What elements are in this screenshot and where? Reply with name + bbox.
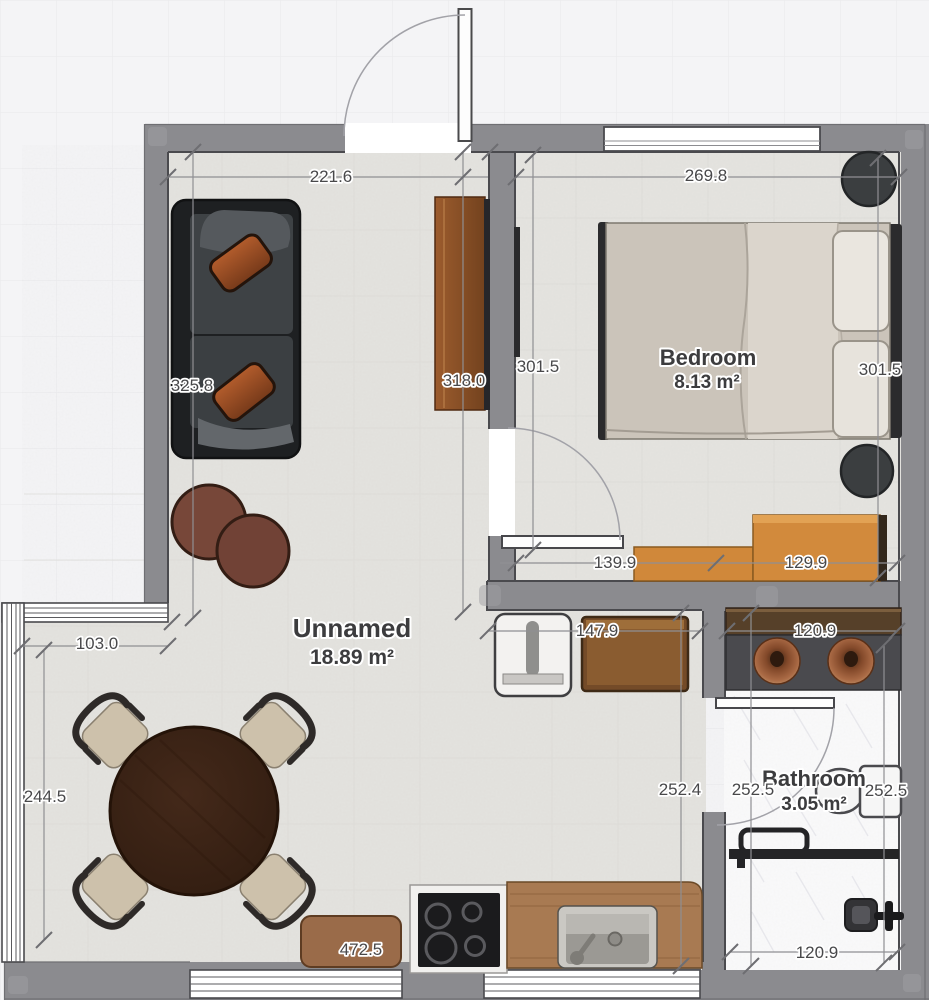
- svg-text:139.9: 139.9: [594, 553, 637, 572]
- svg-text:18.89 m²: 18.89 m²: [310, 646, 394, 669]
- svg-text:472.5: 472.5: [340, 940, 383, 959]
- svg-text:147.9: 147.9: [576, 621, 619, 640]
- svg-text:3.05 m²: 3.05 m²: [781, 794, 846, 815]
- svg-text:252.5: 252.5: [865, 781, 908, 800]
- svg-text:252.4: 252.4: [659, 780, 702, 799]
- svg-text:129.9: 129.9: [785, 553, 828, 572]
- svg-text:318.0: 318.0: [443, 371, 486, 390]
- svg-text:120.9: 120.9: [794, 621, 837, 640]
- svg-text:301.5: 301.5: [517, 357, 560, 376]
- svg-text:Unnamed: Unnamed: [293, 613, 411, 643]
- svg-text:301.5: 301.5: [859, 360, 902, 379]
- svg-text:Bathroom: Bathroom: [762, 766, 866, 791]
- svg-text:244.5: 244.5: [24, 787, 67, 806]
- svg-text:8.13 m²: 8.13 m²: [674, 372, 739, 393]
- svg-text:120.9: 120.9: [796, 943, 839, 962]
- svg-text:325.8: 325.8: [171, 376, 214, 395]
- svg-text:269.8: 269.8: [685, 166, 728, 185]
- svg-text:252.5: 252.5: [732, 780, 775, 799]
- svg-text:Bedroom: Bedroom: [660, 345, 757, 370]
- svg-text:221.6: 221.6: [310, 167, 353, 186]
- svg-text:103.0: 103.0: [76, 634, 119, 653]
